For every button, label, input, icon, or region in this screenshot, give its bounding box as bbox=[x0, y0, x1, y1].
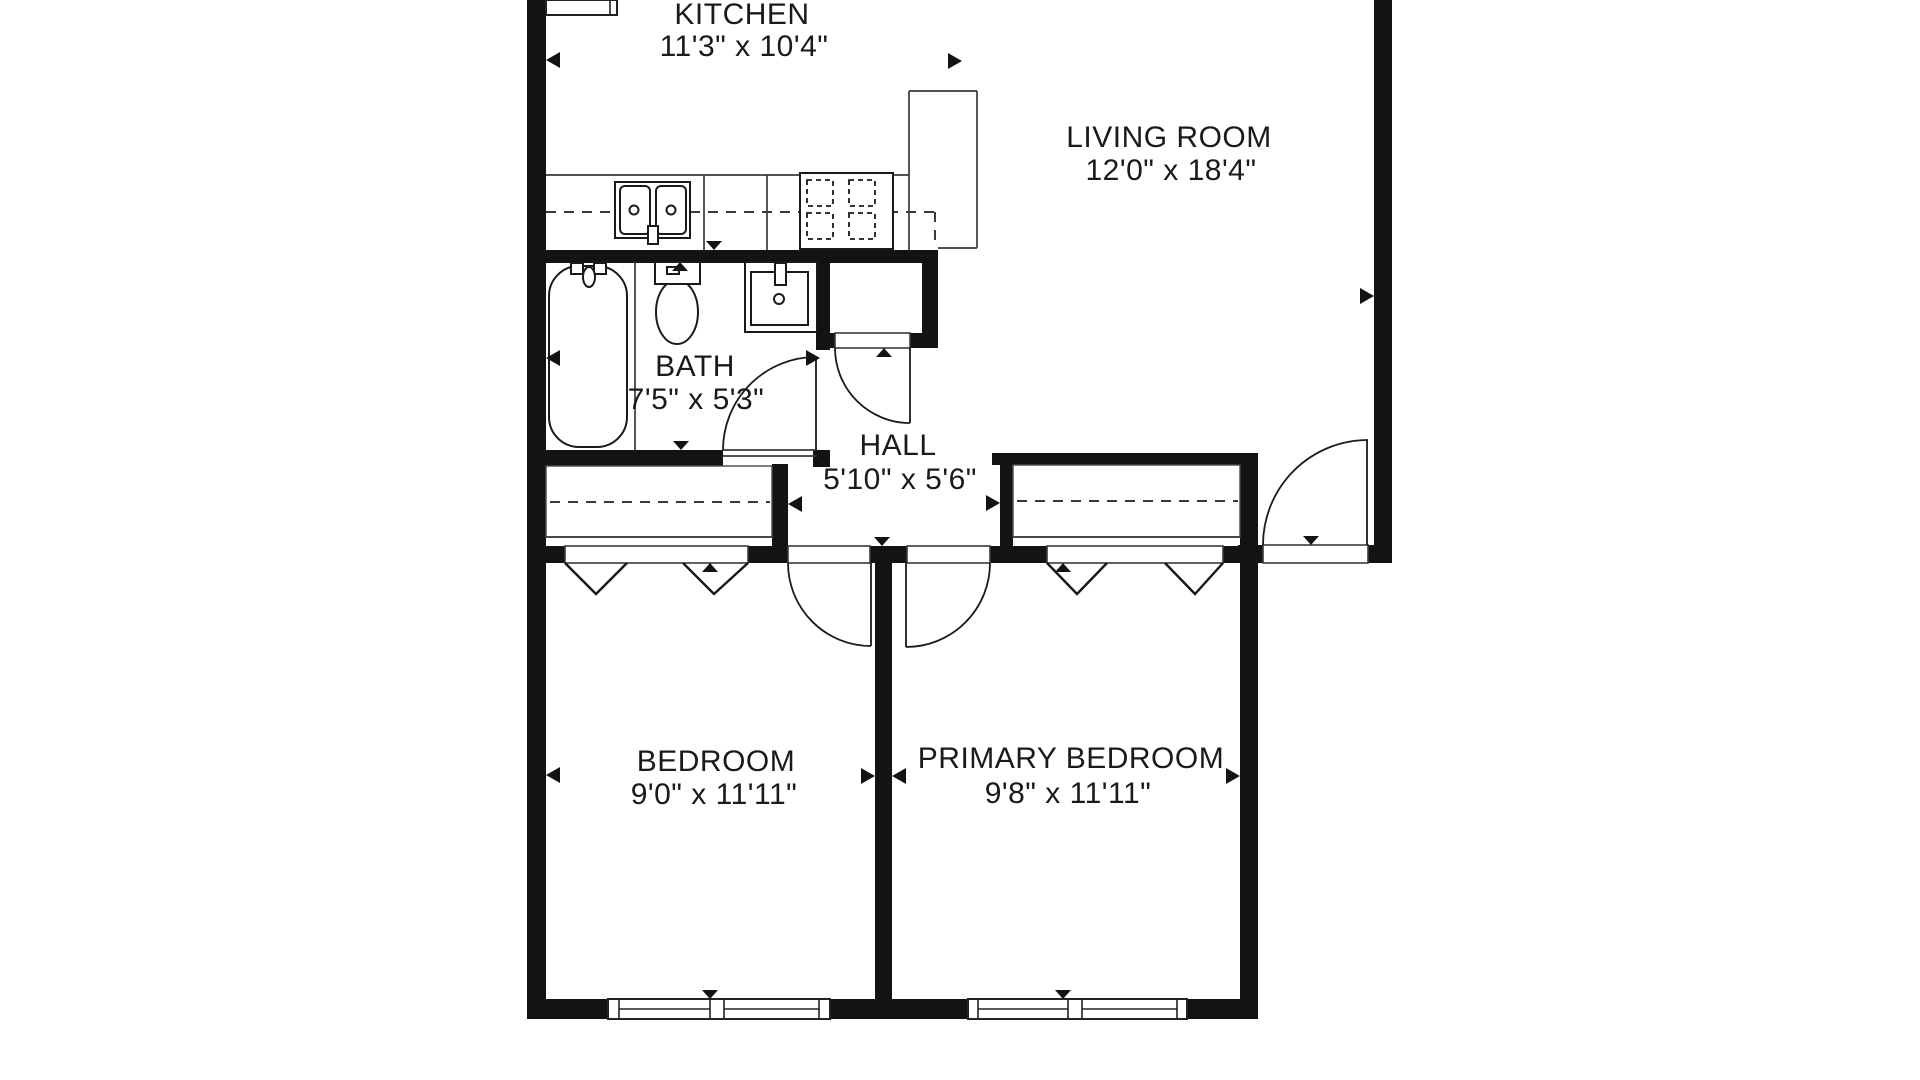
bedroom-bifold-right bbox=[683, 563, 748, 594]
primary-closet-top-wall bbox=[992, 453, 1255, 465]
kitchen-faucet bbox=[648, 226, 658, 244]
entry-door-arc bbox=[1263, 440, 1368, 545]
hall-wall-between-doors bbox=[870, 546, 907, 563]
marker-living-right bbox=[1360, 288, 1374, 304]
room-label-living-room: LIVING ROOM bbox=[1066, 123, 1272, 153]
bottom-wall-middle bbox=[830, 999, 968, 1019]
primary-closet-track bbox=[1047, 546, 1223, 563]
living-bottom-wall bbox=[1238, 545, 1263, 563]
marker-kitchen-left bbox=[546, 52, 560, 68]
left-outer-wall bbox=[527, 0, 546, 1019]
bottom-wall-right bbox=[1187, 999, 1258, 1019]
marker-entry-sill bbox=[1303, 536, 1319, 545]
bottom-wall-left bbox=[527, 999, 609, 1019]
room-label-kitchen: KITCHEN bbox=[674, 0, 809, 30]
tub-handle-right bbox=[594, 263, 606, 274]
bedroom-door-arc bbox=[788, 563, 871, 646]
bedroom-door-opening bbox=[788, 546, 870, 563]
marker-bath-right bbox=[806, 350, 820, 366]
hall-closet-front-right bbox=[910, 333, 938, 348]
right-outer-wall bbox=[1374, 0, 1392, 563]
room-label-bath: BATH bbox=[655, 352, 735, 382]
bath-faucet bbox=[775, 263, 786, 285]
marker-primary-right bbox=[1226, 768, 1240, 784]
room-label-primary-bedroom: PRIMARY BEDROOM bbox=[918, 744, 1224, 774]
marker-bedroom-left bbox=[546, 767, 560, 783]
bedroom-closet-front-left bbox=[527, 546, 565, 563]
primary-right-wall bbox=[1240, 453, 1258, 1019]
primary-bifold-left bbox=[1047, 563, 1107, 594]
kitchen-sink-drain-right bbox=[667, 206, 676, 215]
room-dims-bath: 7'5" x 5'3" bbox=[628, 385, 765, 415]
bath-bottom-wall bbox=[527, 450, 723, 466]
primary-closet-front-left bbox=[990, 546, 1047, 563]
floor-plan-page: { "colors": {"wall":"#131313","thin_line… bbox=[0, 0, 1920, 1080]
marker-bedroom-right bbox=[861, 768, 875, 784]
hall-closet-door-arc bbox=[835, 348, 910, 423]
stove-burner-2 bbox=[849, 180, 875, 206]
floor-plan-canvas bbox=[0, 0, 1920, 1080]
bedroom-divider-wall bbox=[875, 563, 892, 999]
marker-kitchen-bottom bbox=[706, 241, 722, 250]
bedroom-bifold-left bbox=[565, 563, 627, 594]
marker-bedroom-top bbox=[702, 563, 718, 572]
bathtub bbox=[549, 266, 627, 447]
marker-hall-left bbox=[788, 496, 802, 512]
kitchen-sink-drain-left bbox=[630, 206, 639, 215]
hall-closet-door-opening bbox=[835, 333, 910, 348]
entry-door-opening bbox=[1263, 545, 1368, 563]
bath-sink-drain bbox=[774, 294, 784, 304]
marker-primary-bottom bbox=[1055, 990, 1071, 999]
toilet-bowl bbox=[656, 280, 698, 344]
room-label-hall: HALL bbox=[859, 431, 936, 461]
room-dims-bedroom: 9'0" x 11'11" bbox=[631, 780, 798, 810]
kitchen-bath-wall bbox=[527, 250, 938, 263]
marker-hall-bottom bbox=[874, 537, 890, 546]
room-dims-primary-bedroom: 9'8" x 11'11" bbox=[985, 779, 1152, 809]
marker-bath-bottom bbox=[673, 441, 689, 450]
stove-burner-1 bbox=[807, 180, 833, 206]
bedroom-closet-front-right bbox=[748, 546, 788, 563]
tub-handle-left bbox=[571, 263, 583, 274]
marker-primary-top bbox=[1055, 563, 1071, 572]
primary-door-arc bbox=[906, 563, 990, 647]
room-label-bedroom: BEDROOM bbox=[637, 747, 796, 777]
room-dims-hall: 5'10" x 5'6" bbox=[823, 465, 977, 495]
kitchen-top-window bbox=[546, 0, 617, 15]
marker-kitchen-right bbox=[948, 53, 962, 69]
marker-primary-left bbox=[892, 768, 906, 784]
marker-hall-right bbox=[986, 495, 1000, 511]
bedroom-closet-track bbox=[565, 546, 748, 563]
marker-bedroom-bottom bbox=[702, 990, 718, 999]
room-dims-living-room: 12'0" x 18'4" bbox=[1085, 156, 1256, 186]
room-dims-kitchen: 11'3" x 10'4" bbox=[660, 32, 829, 62]
primary-door-opening bbox=[907, 546, 990, 563]
primary-closet-left-wall bbox=[1000, 465, 1013, 546]
stove-burner-3 bbox=[807, 213, 833, 239]
marker-hall-top bbox=[876, 348, 892, 357]
stove-burner-4 bbox=[849, 213, 875, 239]
tub-spout bbox=[583, 267, 595, 287]
primary-bifold-right bbox=[1165, 563, 1223, 594]
hall-closet-front-left bbox=[816, 333, 835, 348]
